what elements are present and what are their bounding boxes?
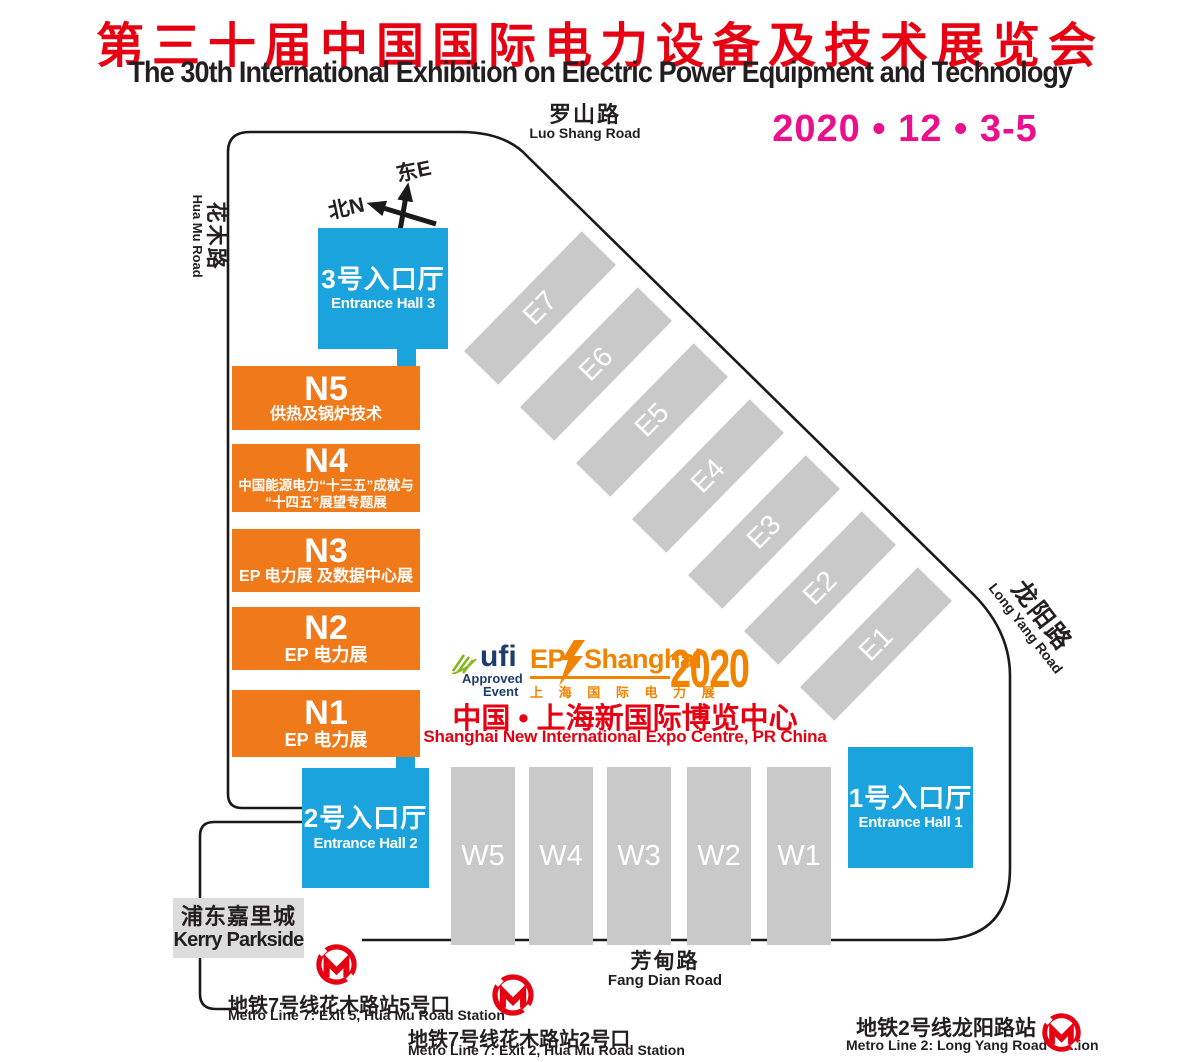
- entrance-hall-1: 1号入口厅 Entrance Hall 1: [848, 747, 973, 868]
- entrance-hall-1-en: Entrance Hall 1: [859, 814, 963, 832]
- hall-w5: W5: [451, 767, 515, 945]
- hall-n4-sub1: 中国能源电力“十三五”成就与: [238, 478, 414, 495]
- ep-shanghai-logo: EP Shanghai 上 海 国 际 电 力 展 2020: [530, 640, 830, 700]
- venue-name-en: Shanghai New International Expo Centre, …: [390, 727, 860, 747]
- metro-logo-icon: [491, 973, 535, 1017]
- hall-n1-id: N1: [304, 696, 347, 730]
- expo-map: 第三十届中国国际电力设备及技术展览会 The 30th Internationa…: [0, 0, 1200, 1062]
- hall-n4-sub2: “十四五”展望专题展: [265, 495, 387, 512]
- hall-w3: W3: [607, 767, 671, 945]
- page-title-en: The 30th International Exhibition on Ele…: [0, 56, 1200, 90]
- kerry-parkside-en: Kerry Parkside: [173, 929, 303, 952]
- metro2-en: Metro Line 7: Exit 2, Hua Mu Road Statio…: [408, 1042, 628, 1058]
- entrance-hall-2-en: Entrance Hall 2: [314, 835, 418, 853]
- hall-n3: N3 EP 电力展 及数据中心展: [232, 529, 420, 592]
- ufi-logo: ufi Approved Event: [450, 642, 520, 696]
- road-luoshang-cn: 罗山路: [500, 103, 670, 126]
- hall-n4-id: N4: [304, 444, 347, 478]
- ep-underline: [530, 676, 670, 679]
- entrance-hall-3-cn: 3号入口厅: [321, 264, 444, 295]
- road-fangdian-en: Fang Dian Road: [580, 973, 750, 990]
- road-fangdian-cn: 芳甸路: [580, 951, 750, 973]
- hall-w2: W2: [687, 767, 751, 945]
- lightning-bolt-icon: [559, 640, 585, 688]
- hall-n3-id: N3: [304, 534, 347, 568]
- road-huamu-en: Hua Mu Road: [190, 156, 204, 316]
- road-huamu: 花木路 Hua Mu Road: [190, 156, 226, 316]
- hall-n2-id: N2: [304, 611, 347, 645]
- metro-logo-icon: [1041, 1012, 1082, 1053]
- metro1-en: Metro Line 7: Exit 5, Hua Mu Road Statio…: [228, 1007, 448, 1023]
- hall-n1-sub: EP 电力展: [285, 730, 368, 751]
- entrance-hall-3: 3号入口厅 Entrance Hall 3: [318, 228, 448, 349]
- road-luoshang: 罗山路 Luo Shang Road: [500, 103, 670, 141]
- kerry-parkside-box: 浦东嘉里城 Kerry Parkside: [173, 898, 304, 958]
- entrance-hall-1-cn: 1号入口厅: [849, 783, 972, 814]
- hall-n2-sub: EP 电力展: [285, 645, 368, 666]
- hall-w1: W1: [767, 767, 831, 945]
- hall-n5: N5 供热及锅炉技术: [232, 366, 420, 430]
- ep-year: 2020: [670, 642, 748, 696]
- metro3-en: Metro Line 2: Long Yang Road Station: [846, 1037, 1036, 1053]
- ufi-name: ufi: [480, 642, 517, 672]
- metro-logo-icon: [315, 943, 358, 986]
- road-fangdian: 芳甸路 Fang Dian Road: [580, 951, 750, 990]
- road-huamu-cn: 花木路: [204, 156, 226, 316]
- hall-n2: N2 EP 电力展: [232, 607, 420, 670]
- hall-w4: W4: [529, 767, 593, 945]
- event-date: 2020 • 12 • 3-5: [745, 108, 1065, 151]
- entrance-hall-2: 2号入口厅 Entrance Hall 2: [302, 768, 429, 888]
- road-luoshang-en: Luo Shang Road: [500, 126, 670, 141]
- hall-n4: N4 中国能源电力“十三五”成就与 “十四五”展望专题展: [232, 444, 420, 512]
- entrance-hall-3-en: Entrance Hall 3: [331, 295, 435, 313]
- hall-n3-sub: EP 电力展 及数据中心展: [239, 568, 413, 586]
- entrance-hall-2-cn: 2号入口厅: [304, 803, 427, 834]
- hall-n5-sub: 供热及锅炉技术: [270, 406, 382, 424]
- hall-n5-id: N5: [304, 372, 347, 406]
- kerry-parkside-cn: 浦东嘉里城: [181, 904, 296, 929]
